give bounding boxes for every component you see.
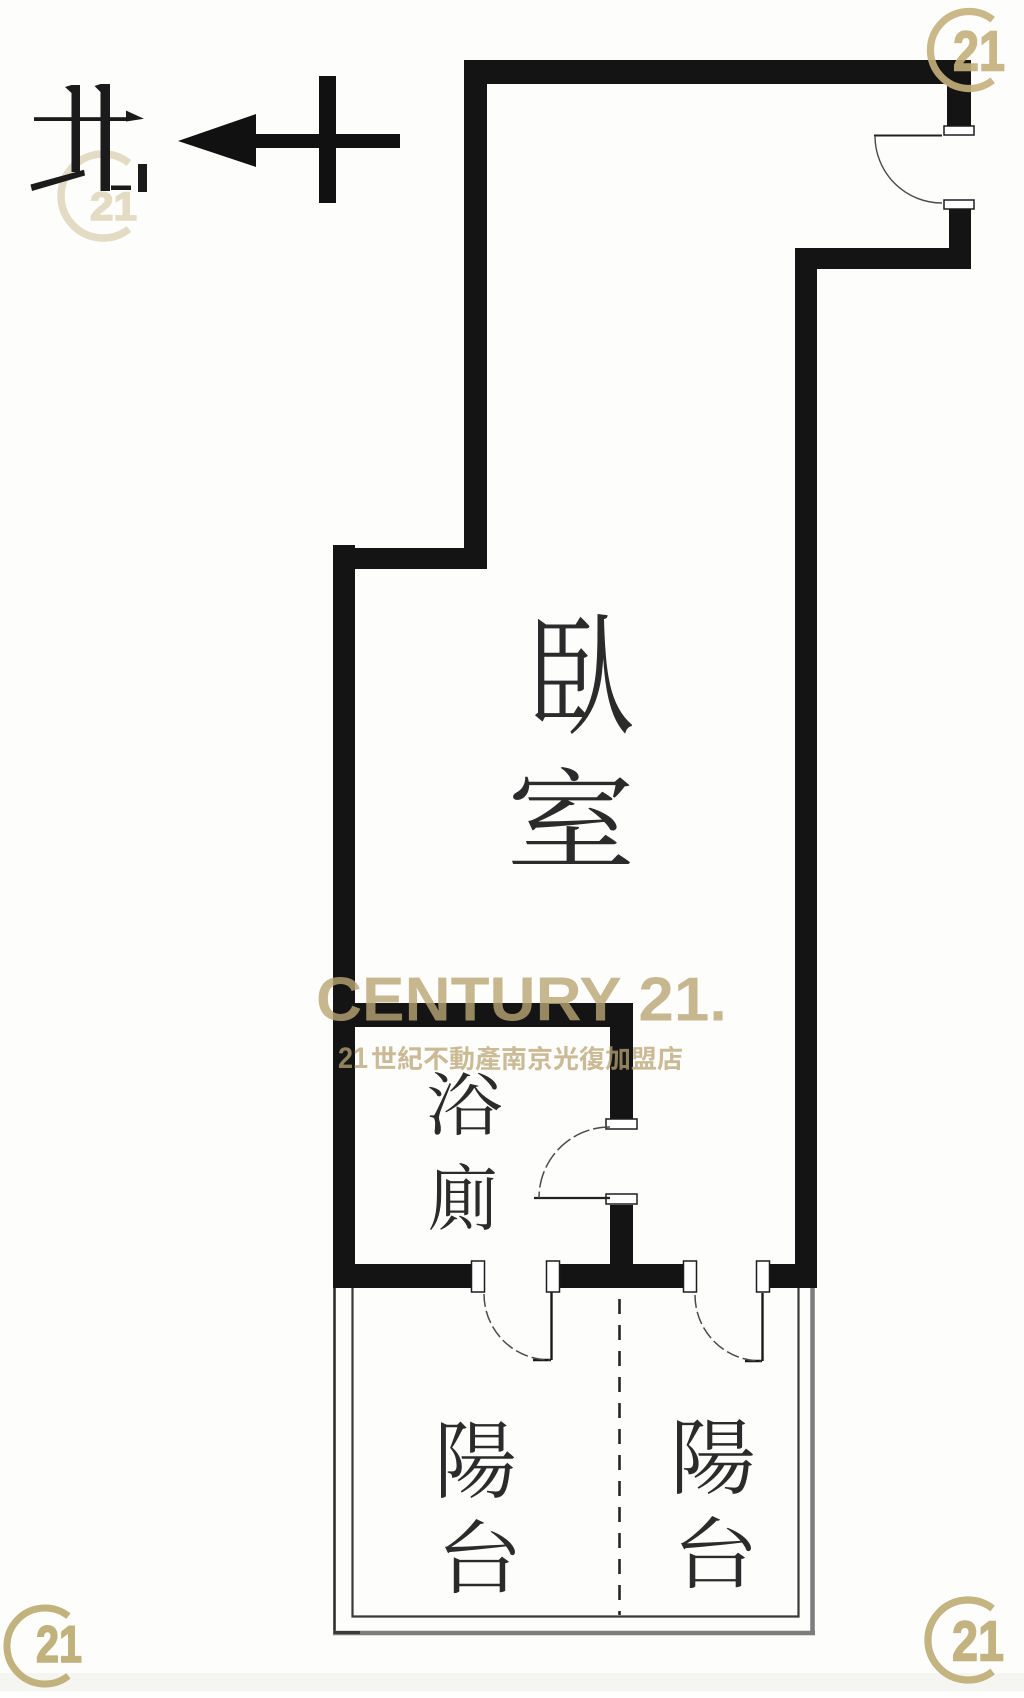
svg-text:21: 21 <box>953 20 1005 84</box>
svg-text:CENTURY 21.: CENTURY 21. <box>316 966 727 1035</box>
svg-text:21: 21 <box>90 185 137 229</box>
svg-text:21: 21 <box>952 1610 1004 1674</box>
svg-text:21: 21 <box>338 1042 368 1075</box>
svg-text:21: 21 <box>36 1616 82 1674</box>
